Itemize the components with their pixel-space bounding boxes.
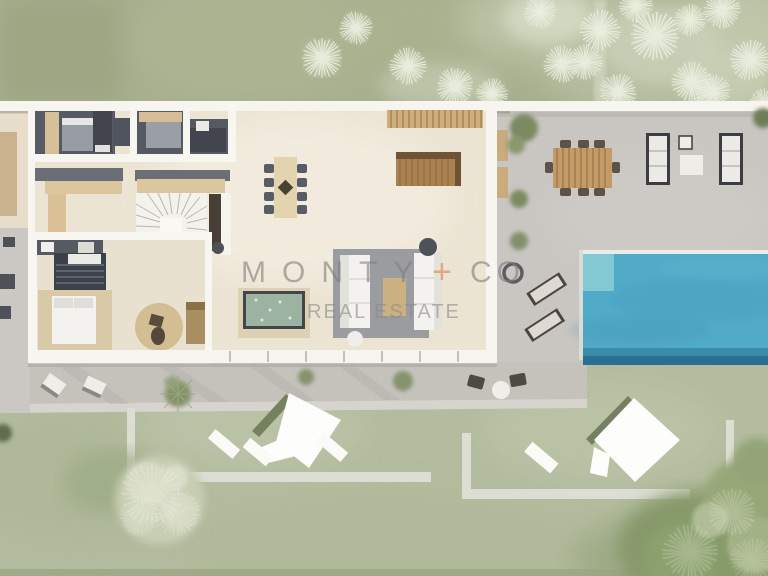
- svg-text:REAL ESTATE: REAL ESTATE: [307, 301, 461, 323]
- svg-text:+: +: [432, 253, 452, 291]
- svg-text:MONTY: MONTY: [241, 256, 429, 289]
- svg-text:CO: CO: [470, 256, 525, 289]
